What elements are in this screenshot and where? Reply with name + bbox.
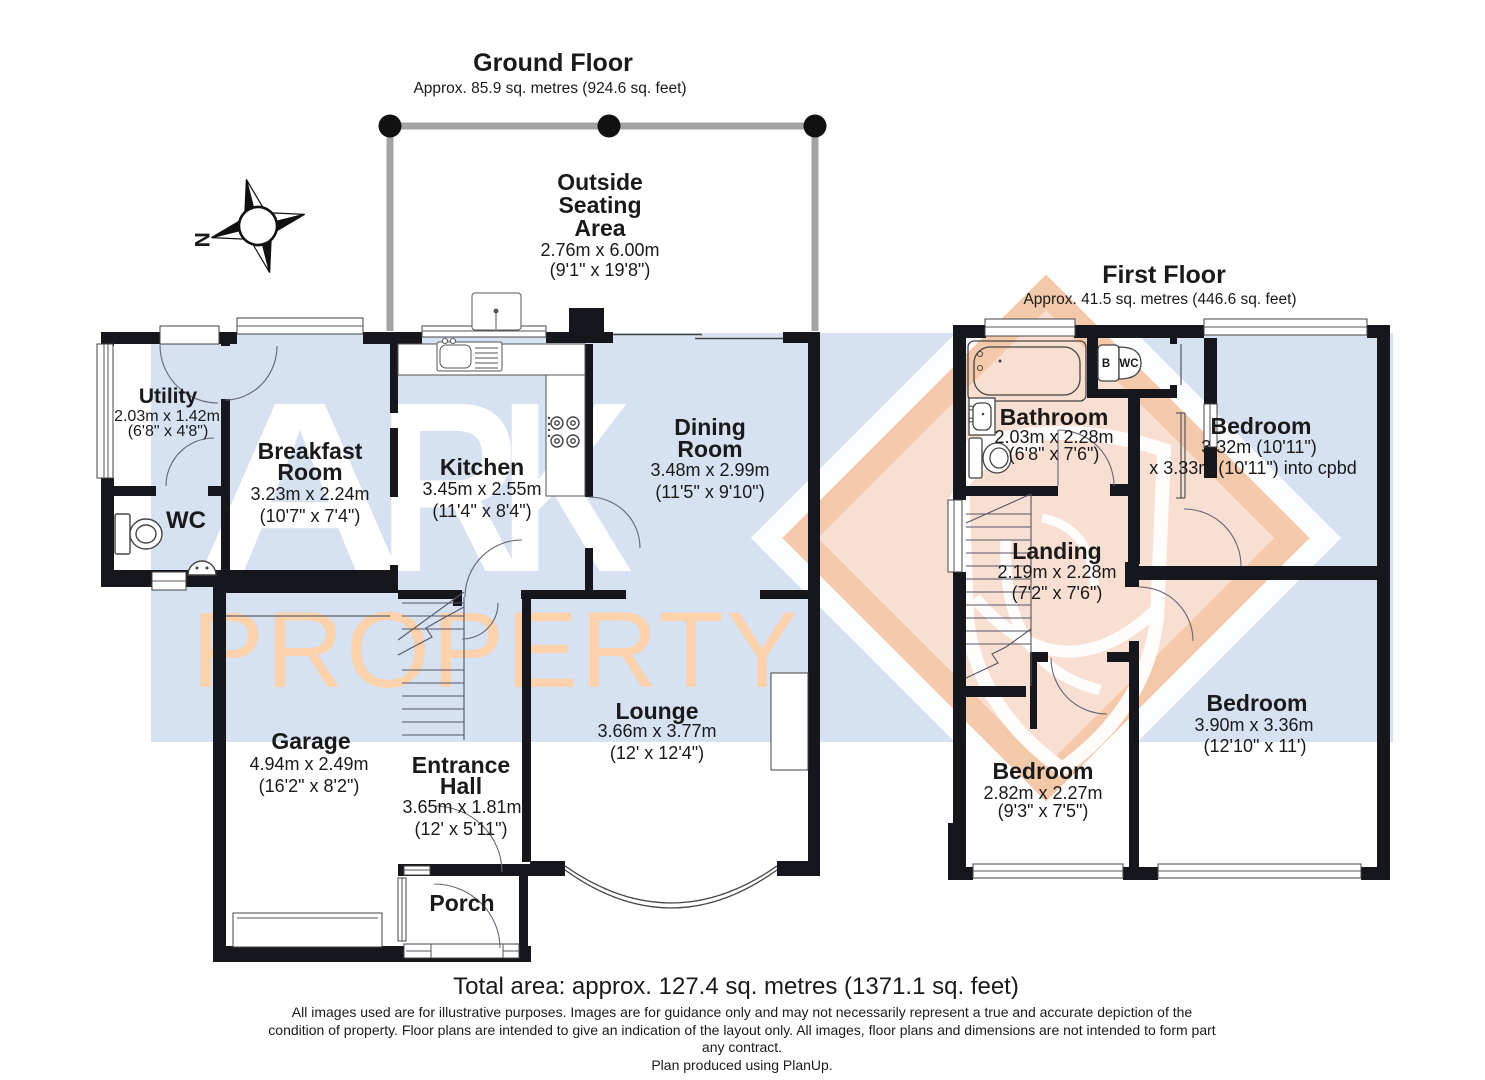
svg-text:WC: WC bbox=[166, 507, 206, 534]
svg-text:(11'4" x 8'4"): (11'4" x 8'4") bbox=[432, 501, 531, 521]
svg-text:3.23m x 2.24m: 3.23m x 2.24m bbox=[250, 484, 369, 504]
svg-text:Ground Floor: Ground Floor bbox=[473, 49, 633, 77]
svg-text:4.94m x 2.49m: 4.94m x 2.49m bbox=[249, 754, 368, 774]
svg-text:Garage: Garage bbox=[271, 728, 350, 754]
svg-text:Plan produced using PlanUp.: Plan produced using PlanUp. bbox=[651, 1057, 832, 1073]
svg-text:Area: Area bbox=[574, 215, 625, 241]
svg-text:2.19m x 2.28m: 2.19m x 2.28m bbox=[997, 562, 1116, 582]
svg-text:3.45m x 2.55m: 3.45m x 2.55m bbox=[422, 479, 541, 499]
svg-text:Bedroom: Bedroom bbox=[1207, 690, 1308, 716]
svg-text:Kitchen: Kitchen bbox=[440, 454, 524, 480]
svg-text:3.65m x 1.81m: 3.65m x 1.81m bbox=[402, 797, 521, 817]
svg-text:(10'7" x 7'4"): (10'7" x 7'4") bbox=[260, 506, 361, 526]
svg-text:condition of property. Floor p: condition of property. Floor plans are i… bbox=[268, 1022, 1215, 1038]
svg-text:(12'10" x 11'): (12'10" x 11') bbox=[1204, 736, 1307, 756]
svg-text:Room: Room bbox=[277, 459, 342, 485]
svg-text:Landing: Landing bbox=[1012, 538, 1101, 564]
svg-text:3.66m x 3.77m: 3.66m x 3.77m bbox=[597, 721, 716, 741]
svg-text:Porch: Porch bbox=[429, 890, 494, 916]
svg-text:(12' x 5'11"): (12' x 5'11") bbox=[415, 819, 508, 839]
svg-text:2.76m x 6.00m: 2.76m x 6.00m bbox=[540, 240, 659, 260]
svg-text:Room: Room bbox=[677, 436, 742, 462]
svg-text:All images used are for illust: All images used are for illustrative pur… bbox=[292, 1004, 1193, 1020]
svg-text:N: N bbox=[192, 232, 215, 247]
svg-text:any contract.: any contract. bbox=[702, 1039, 782, 1055]
svg-text:Bedroom: Bedroom bbox=[993, 758, 1094, 784]
svg-text:(6'8" x 4'8"): (6'8" x 4'8") bbox=[128, 423, 209, 440]
svg-text:(6'8" x 7'6"): (6'8" x 7'6") bbox=[1009, 444, 1100, 464]
svg-text:Utility: Utility bbox=[139, 385, 198, 408]
svg-text:Approx. 85.9 sq. metres (924.6: Approx. 85.9 sq. metres (924.6 sq. feet) bbox=[413, 80, 686, 97]
svg-text:2.82m x 2.27m: 2.82m x 2.27m bbox=[983, 783, 1102, 803]
svg-text:Bedroom: Bedroom bbox=[1211, 413, 1312, 439]
svg-text:Approx. 41.5 sq. metres (446.6: Approx. 41.5 sq. metres (446.6 sq. feet) bbox=[1023, 291, 1296, 308]
svg-text:(16'2" x 8'2"): (16'2" x 8'2") bbox=[259, 776, 360, 796]
svg-text:(9'1" x 19'8"): (9'1" x 19'8") bbox=[550, 260, 651, 280]
svg-text:First Floor: First Floor bbox=[1102, 261, 1226, 289]
svg-text:3.48m x 2.99m: 3.48m x 2.99m bbox=[650, 460, 769, 480]
svg-text:(11'5" x 9'10"): (11'5" x 9'10") bbox=[655, 482, 764, 502]
svg-text:B: B bbox=[1102, 358, 1110, 370]
svg-text:PROPERTY: PROPERTY bbox=[192, 589, 800, 710]
svg-text:WC: WC bbox=[1119, 358, 1138, 370]
svg-text:Hall: Hall bbox=[440, 773, 482, 799]
svg-text:3.32m (10'11"): 3.32m (10'11") bbox=[1201, 437, 1317, 457]
svg-text:(12' x 12'4"): (12' x 12'4") bbox=[610, 743, 704, 763]
svg-text:(7'2" x 7'6"): (7'2" x 7'6") bbox=[1012, 583, 1103, 603]
svg-text:(9'3" x 7'5"): (9'3" x 7'5") bbox=[998, 801, 1089, 821]
svg-text:3.90m x 3.36m: 3.90m x 3.36m bbox=[1194, 715, 1313, 735]
svg-text:x 3.33m (10'11") into cpbd: x 3.33m (10'11") into cpbd bbox=[1149, 458, 1357, 478]
svg-text:Total area: approx. 127.4 sq.: Total area: approx. 127.4 sq. metres (13… bbox=[453, 973, 1019, 1000]
